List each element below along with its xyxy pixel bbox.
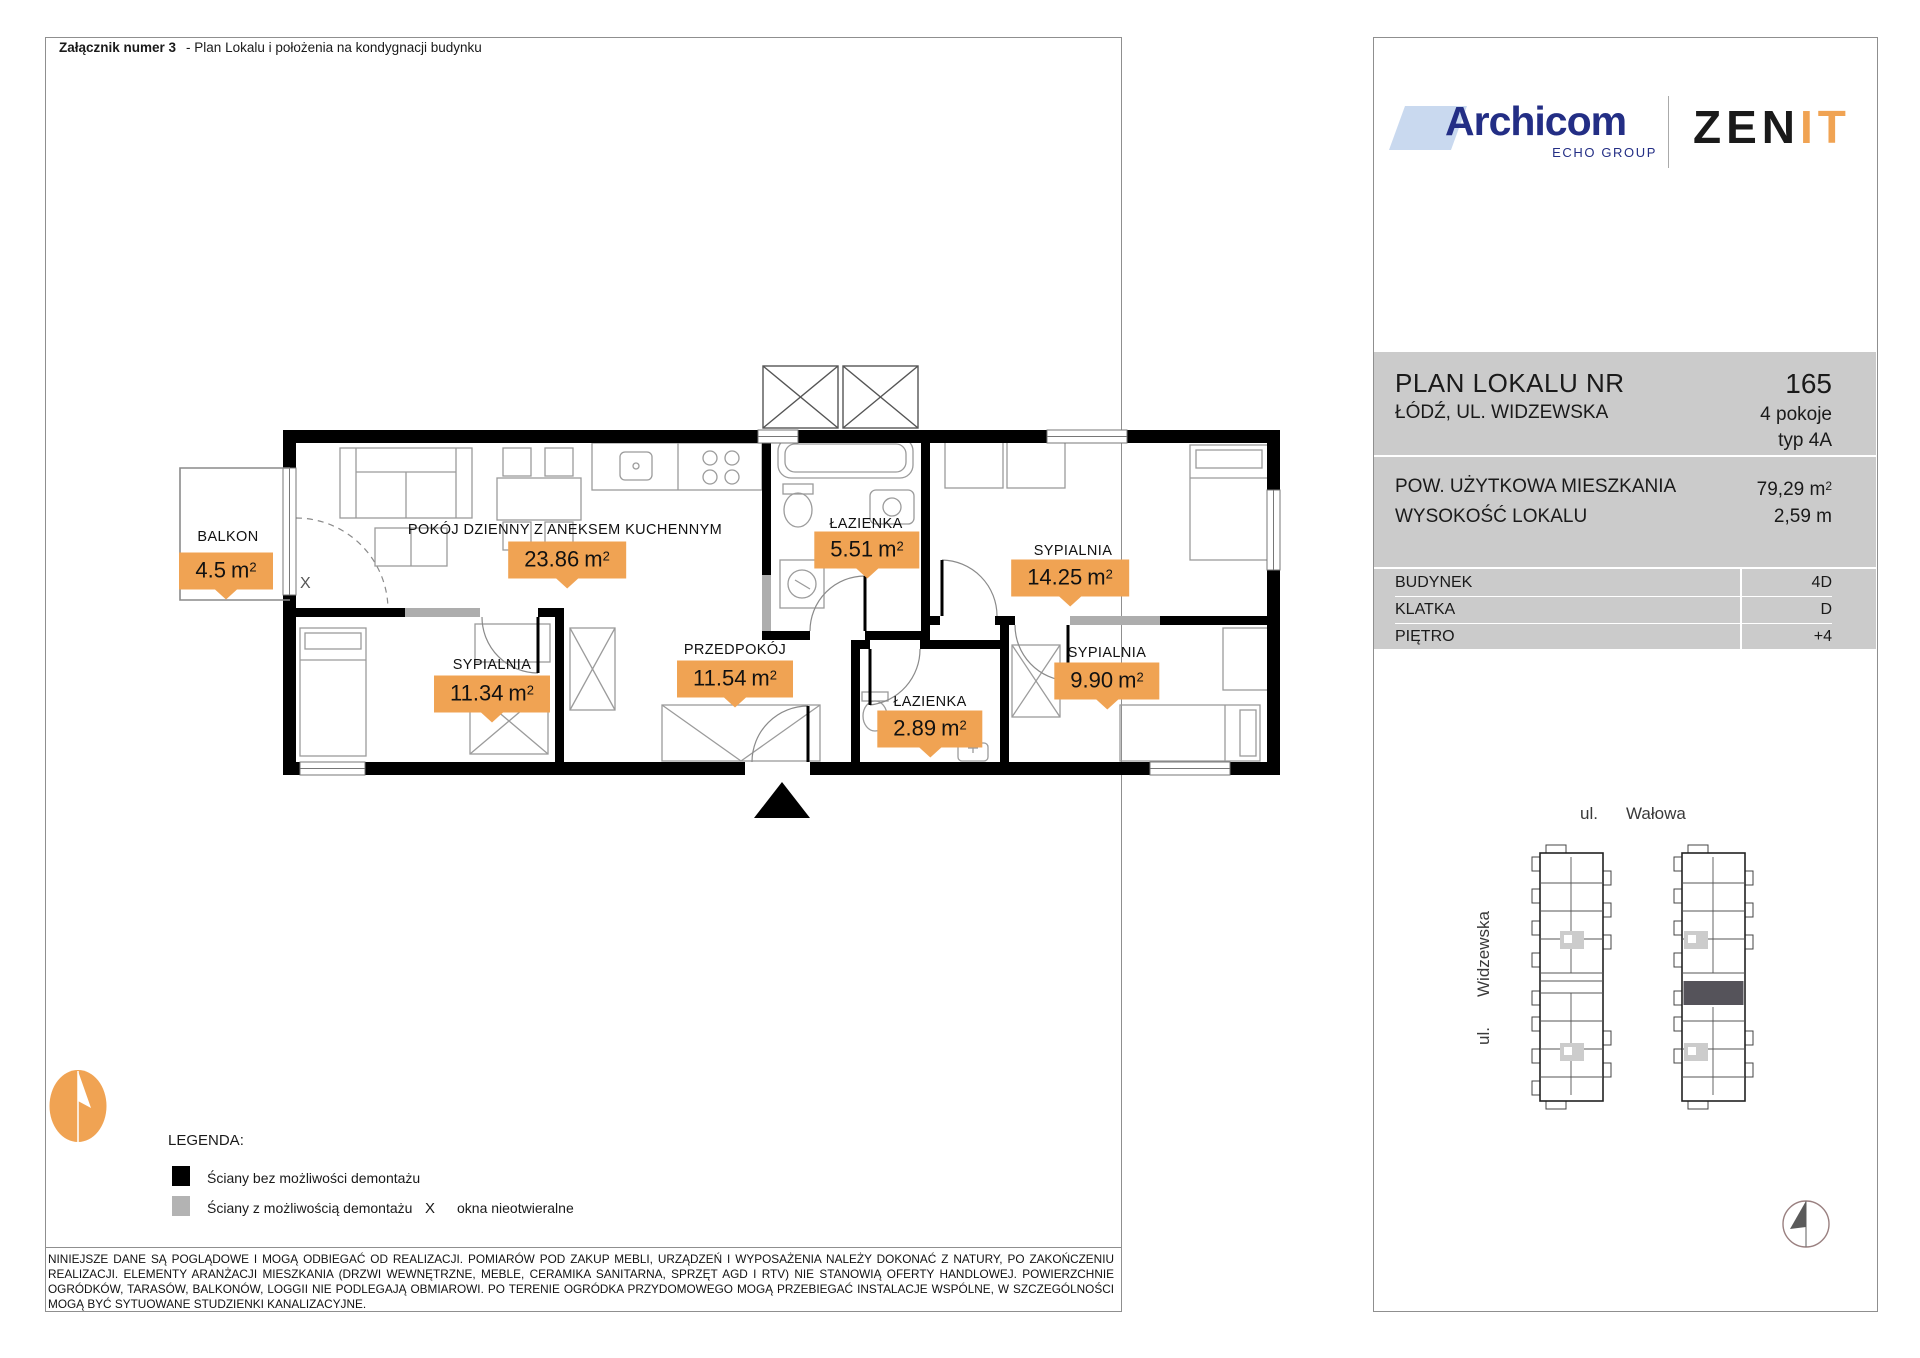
staircase-value: D (1820, 597, 1832, 623)
room-name: SYPIALNIA (453, 657, 532, 673)
north-compass-icon (1778, 1196, 1834, 1252)
logo-divider (1668, 96, 1669, 168)
windows (283, 430, 1280, 775)
info-panel-frame (1373, 37, 1878, 1312)
bed-left-icon (300, 628, 366, 756)
door-leaves (538, 560, 1068, 762)
zenit-logo: ZENIT (1693, 100, 1851, 154)
legend-solid-wall-swatch (172, 1166, 190, 1186)
archicom-logo: Archicom ECHO GROUP (1395, 98, 1663, 168)
disclaimer-divider (45, 1247, 1122, 1248)
unit-location-block: BUDYNEK4D KLATKAD PIĘTRO+4 (1374, 569, 1876, 649)
toilet-icon (783, 484, 813, 527)
highlighted-unit (1684, 981, 1744, 1005)
legend-demountable-wall-swatch (172, 1196, 190, 1216)
plan-title: PLAN LOKALU NR (1395, 368, 1625, 399)
legend-window-symbol: X (425, 1200, 435, 1217)
unit-title-block: PLAN LOKALU NR ŁÓDŹ, UL. WIDZEWSKA 165 4… (1374, 352, 1876, 455)
legend-title: LEGENDA: (168, 1132, 244, 1149)
bathtub-icon (778, 438, 913, 478)
height-value: 2,59 m (1774, 503, 1832, 530)
room-area-badge: 14.25m2 (1011, 560, 1129, 597)
unit-rooms-count: 4 pokoje (1760, 404, 1832, 426)
plan-address: ŁÓDŹ, UL. WIDZEWSKA (1395, 402, 1625, 424)
staircase-label: KLATKA (1395, 597, 1455, 623)
hob-icon (703, 451, 739, 484)
legend-window-label: okna nieotwieralne (457, 1200, 574, 1216)
attachment-desc: - Plan Lokalu i położenia na kondygnacji… (186, 40, 482, 55)
compass-icon (48, 1066, 108, 1146)
building-value: 4D (1812, 570, 1832, 596)
room-area-badge: 11.34m2 (434, 676, 550, 713)
room-area-badge: 9.90m2 (1054, 663, 1159, 700)
entrance-arrow-icon (754, 782, 810, 818)
room-area-badge: 4.5m2 (179, 553, 273, 590)
unit-number: 165 (1760, 368, 1832, 400)
sofa-icon (340, 448, 472, 518)
height-label: WYSOKOŚĆ LOKALU (1395, 503, 1587, 530)
wardrobe-hall-icon (570, 628, 615, 710)
disclaimer-text: NINIEJSZE DANE SĄ POGLĄDOWE I MOGĄ ODBIE… (48, 1252, 1114, 1312)
shoe-cabinet-icon (662, 705, 820, 761)
room-name: SYPIALNIA (1068, 645, 1147, 661)
room-area-badge: 11.54m2 (677, 661, 793, 698)
unit-type: typ 4A (1760, 430, 1832, 452)
attachment-label: Załącznik numer 3 (59, 40, 176, 55)
archicom-logo-sub: ECHO GROUP (1552, 145, 1657, 160)
legend-demountable-wall-label: Ściany z możliwością demontażu (207, 1200, 412, 1216)
room-name: ŁAZIENKA (893, 694, 966, 710)
shaft-boxes (763, 366, 918, 428)
room-name: ŁAZIENKA (829, 516, 902, 532)
building-label: BUDYNEK (1395, 570, 1472, 596)
bed-top-icon (1190, 445, 1268, 560)
wardrobe-top-icon (945, 438, 1065, 488)
wardrobe-right-icon (1012, 645, 1060, 717)
solid-walls (283, 430, 1280, 775)
room-area-badge: 23.86m2 (508, 542, 626, 579)
attachment-header: Załącznik numer 3- Plan Lokalu i położen… (59, 40, 482, 55)
location-block-column-divider (1740, 569, 1742, 649)
fixed-window-marker: X (300, 575, 311, 592)
room-area-badge: 5.51m2 (814, 532, 919, 569)
room-name: PRZEDPOKÓJ (684, 642, 786, 658)
room-name: BALKON (197, 529, 258, 545)
room-name: POKÓJ DZIENNY Z ANEKSEM KUCHENNYM (408, 522, 722, 538)
site-map-svg (1450, 795, 1850, 1115)
room-name: SYPIALNIA (1034, 543, 1113, 559)
archicom-logo-word: Archicom (1445, 98, 1626, 145)
area-value: 79,29 m2 (1757, 473, 1832, 503)
floor-value: +4 (1814, 624, 1832, 650)
floor-label: PIĘTRO (1395, 624, 1455, 650)
room-area-badge: 2.89m2 (877, 711, 982, 748)
area-label: POW. UŻYTKOWA MIESZKANIA (1395, 473, 1676, 503)
unit-specs-block: POW. UŻYTKOWA MIESZKANIA 79,29 m2 WYSOKO… (1374, 457, 1876, 567)
legend-solid-wall-label: Ściany bez możliwości demontażu (207, 1170, 420, 1186)
bed-right-icon (1120, 705, 1260, 761)
